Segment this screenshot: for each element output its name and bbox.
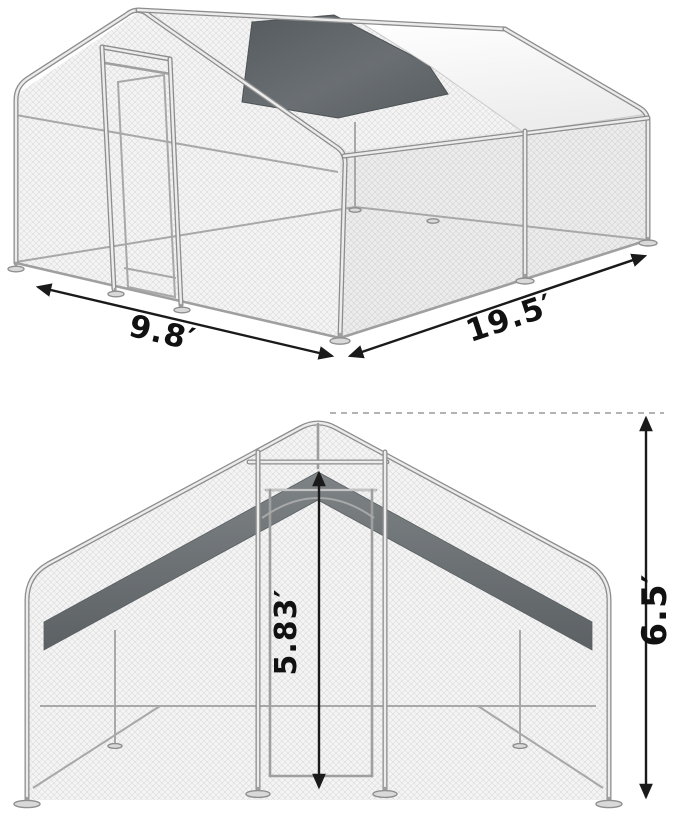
diagram-canvas: 9.8′ 19.5′ [0, 0, 679, 814]
door-height-label: 5.83′ [269, 589, 304, 676]
length-dimension-label: 19.5′ [462, 287, 558, 350]
product-dimension-diagram: 9.8′ 19.5′ [0, 0, 679, 814]
total-height-dimension: 6.5′ [635, 418, 675, 797]
front-elevation-view: 5.83′ 6.5′ [14, 413, 675, 808]
width-dimension-label: 9.8′ [126, 308, 200, 358]
perspective-view: 9.8′ 19.5′ [8, 10, 657, 358]
total-height-label: 6.5′ [635, 573, 675, 646]
